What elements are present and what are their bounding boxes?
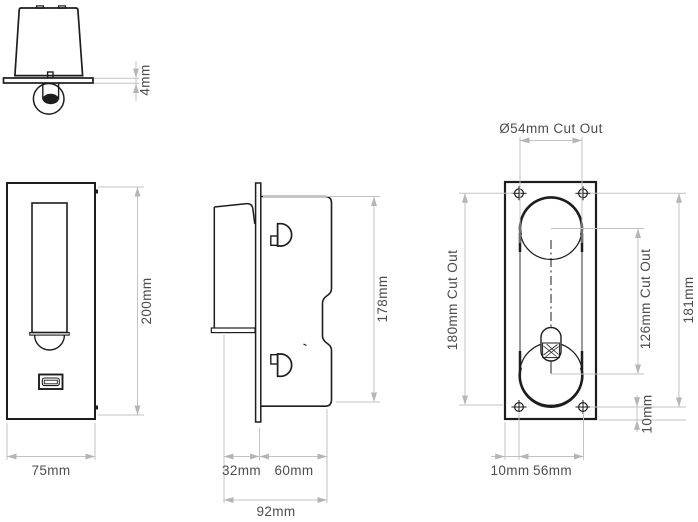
view-front-elevation: 200mm 75mm [7, 183, 154, 478]
dim-label-circle-cutout: Ø54mm Cut Out [499, 121, 602, 136]
box-mark [304, 344, 307, 346]
clip-nub [95, 190, 98, 194]
spring-clip-bottom [278, 354, 292, 376]
snoot-rim [30, 333, 69, 336]
clip-nub [95, 406, 98, 410]
dim-label-recess-depth: 60mm [274, 463, 313, 478]
faceplate-edge [4, 78, 94, 83]
lamp-shade-outline [15, 8, 83, 76]
recessed-box-outline [261, 197, 332, 407]
lamp-bottom-rim [211, 328, 255, 333]
shade-top-tab [37, 6, 44, 8]
dim-label-cutout-height: 180mm Cut Out [445, 250, 460, 350]
spring-clip-top-block [271, 236, 278, 245]
dim-label-fixing-centres-vertical: 181mm [681, 276, 696, 323]
dim-label-front-height: 200mm [139, 277, 154, 324]
dim-label-fixing-edge-horizontal: 10mm [490, 463, 529, 478]
dim-label-plate-protrusion: 4mm [138, 64, 153, 95]
shade-top-tab [59, 6, 66, 8]
usb-port-inner [42, 378, 59, 386]
dim-label-body-height: 178mm [375, 275, 390, 322]
cutout-circle-top-edge [520, 197, 582, 235]
view-side-section: 178mm 32mm 60mm 92mm [211, 183, 390, 519]
dim-label-fixing-edge-vertical: 10mm [640, 394, 655, 433]
usb-tongue [44, 380, 57, 384]
spring-clip-top [278, 224, 292, 246]
lamp-head-underside [35, 335, 65, 350]
dim-label-front-width: 75mm [31, 463, 70, 478]
technical-drawing: 4mm 200mm 75mm [0, 0, 698, 522]
technical-drawing-page: 4mm 200mm 75mm [0, 0, 698, 522]
spring-clip-bottom-block [271, 355, 278, 364]
dim-label-front-depth: 32mm [222, 463, 261, 478]
view-rear-plate: Ø54mm Cut Out 180mm Cut Out 126mm Cut Ou… [445, 121, 696, 478]
fixing-hole [511, 186, 526, 200]
fixing-hole [511, 400, 526, 414]
faceplate-edge-side [256, 183, 261, 422]
lamp-snoot-front [32, 203, 67, 333]
view-head-side-detail: 4mm [4, 6, 153, 114]
dim-label-total-depth: 92mm [256, 504, 295, 519]
cable-entry-capsule [541, 328, 561, 362]
dim-label-fixing-centres-horizontal: 56mm [533, 463, 572, 478]
stem-end-cap [43, 94, 59, 104]
dim-label-cutout-centres: 126mm Cut Out [638, 249, 653, 349]
fixing-hole [575, 400, 590, 414]
lamp-top-edge [214, 204, 255, 224]
fixing-hole [575, 186, 590, 200]
